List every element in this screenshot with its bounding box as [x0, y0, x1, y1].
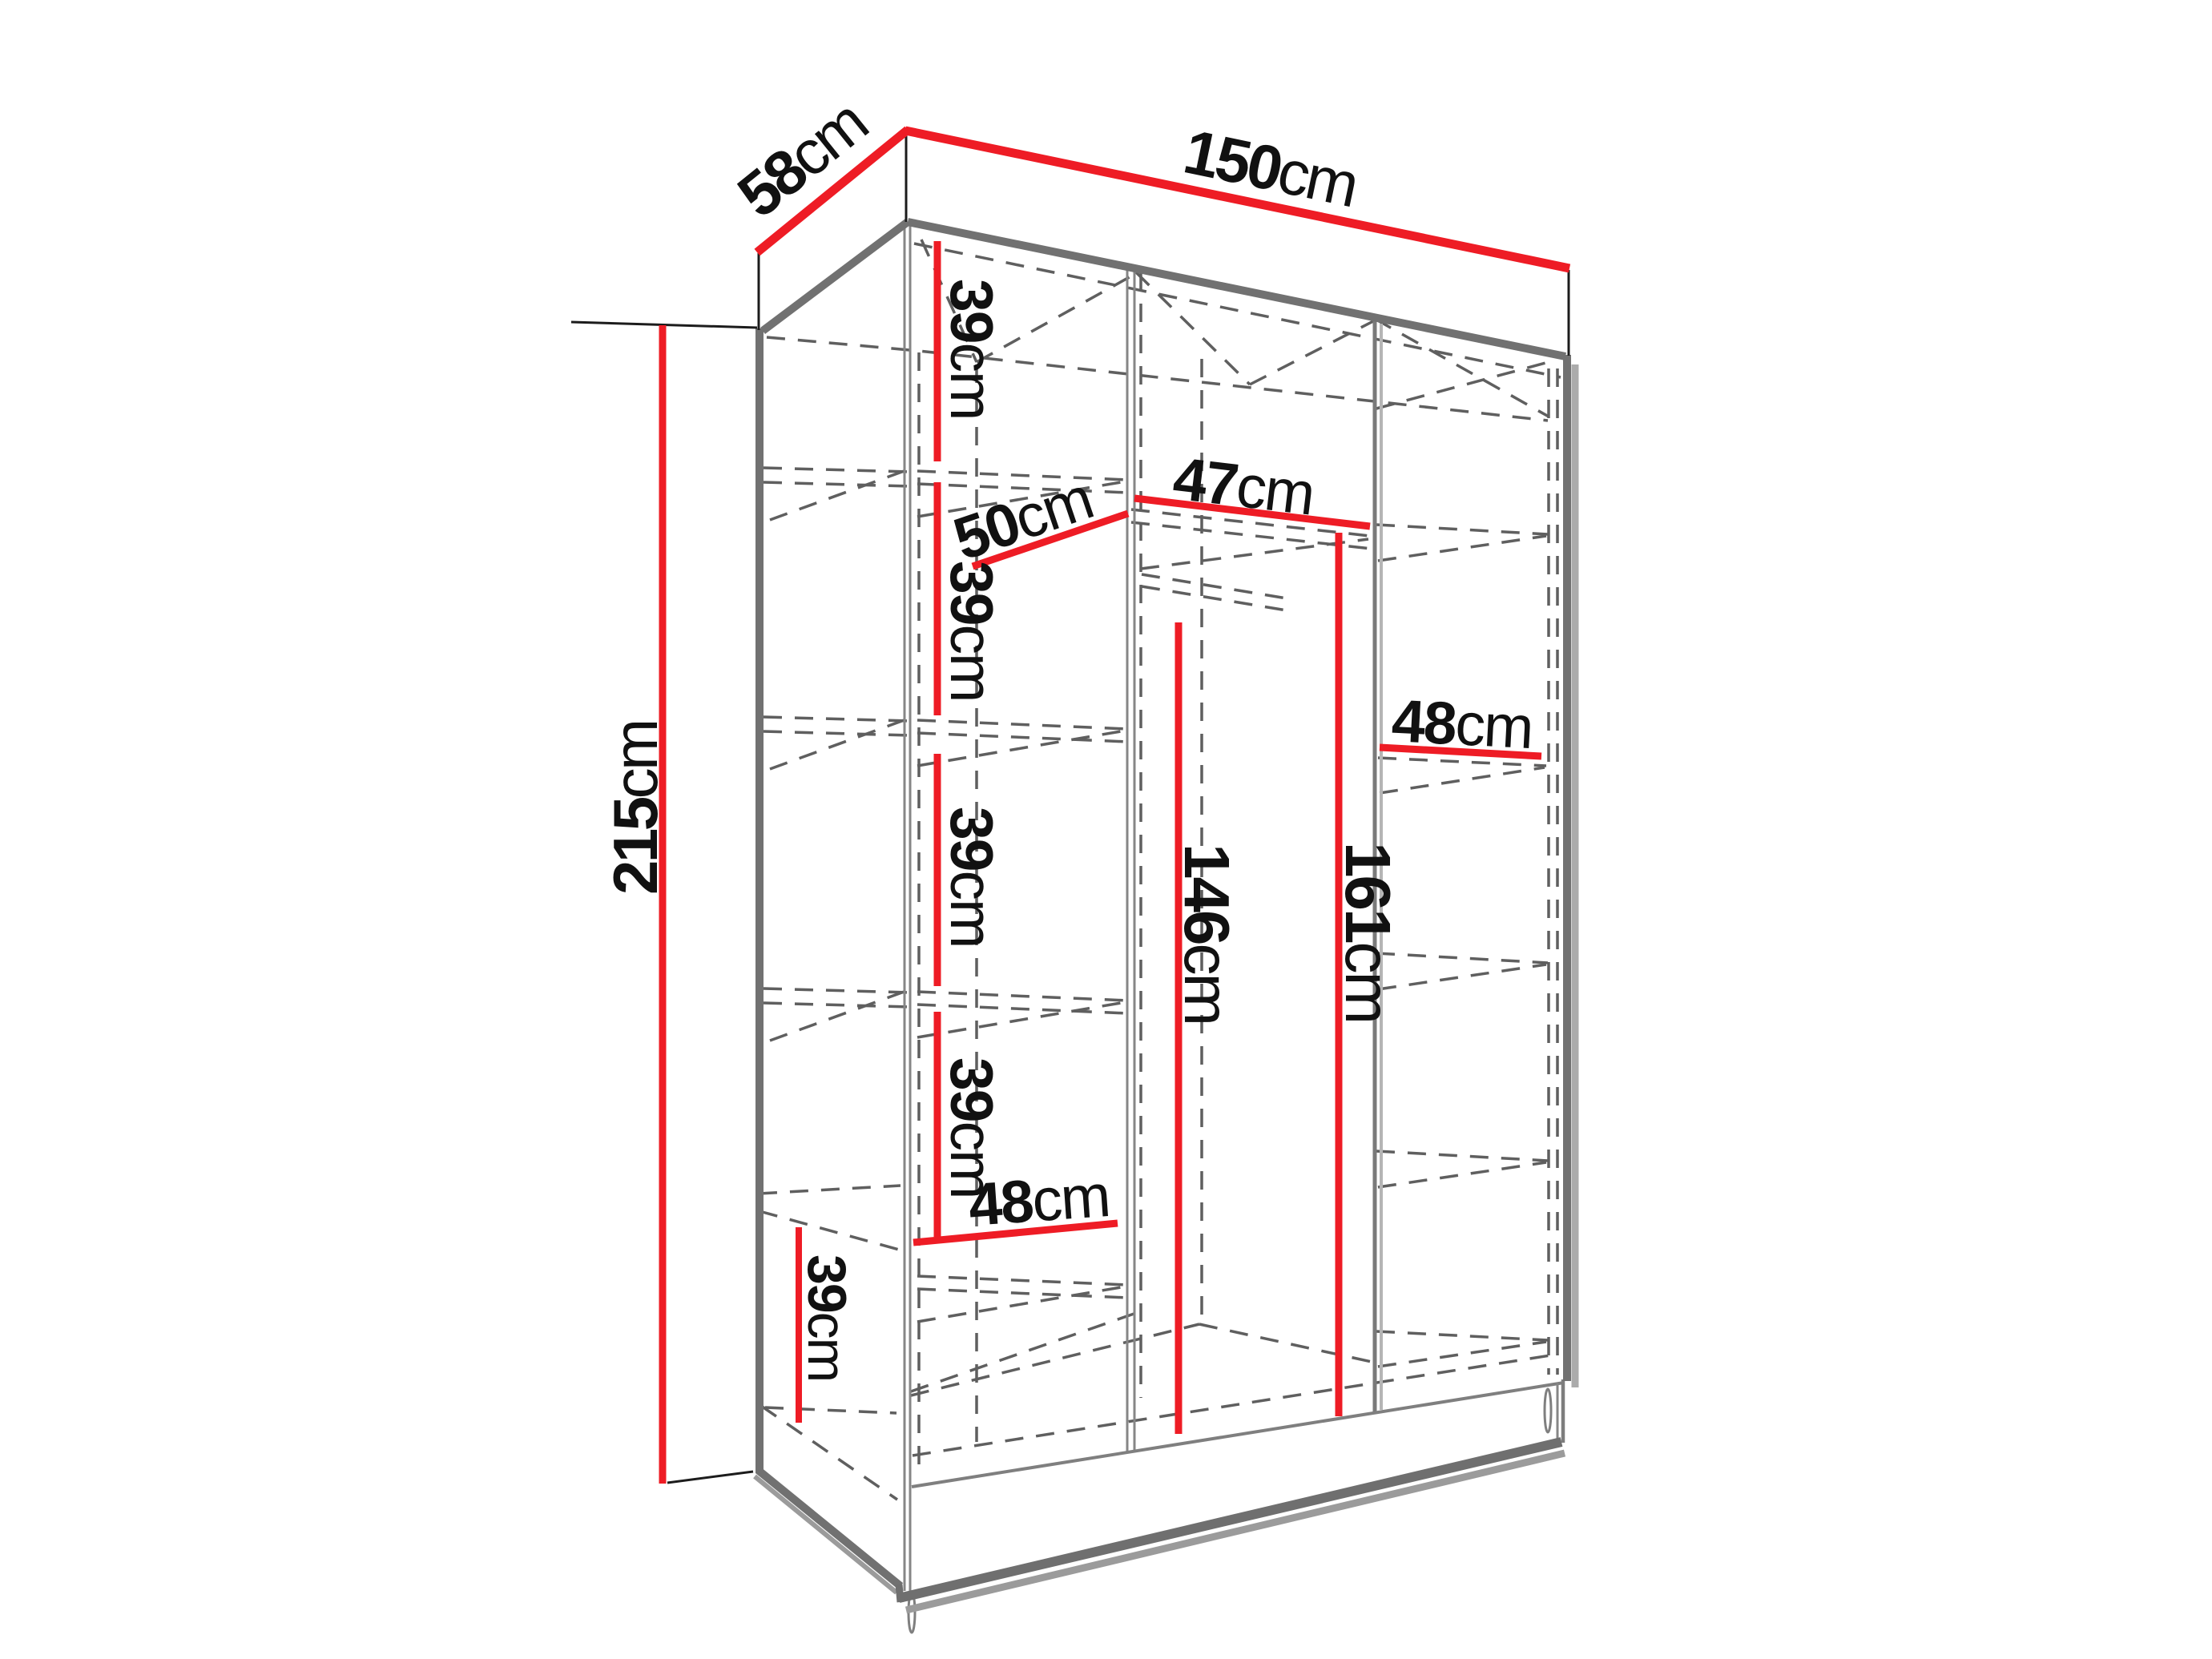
svg-text:215cm: 215cm: [600, 721, 671, 895]
svg-text:39cm: 39cm: [796, 1254, 857, 1381]
svg-text:161cm: 161cm: [1332, 842, 1404, 1022]
svg-text:146cm: 146cm: [1171, 844, 1243, 1024]
svg-text:39cm: 39cm: [938, 279, 1005, 419]
svg-text:48cm: 48cm: [966, 1162, 1111, 1238]
svg-text:39cm: 39cm: [938, 807, 1005, 947]
svg-text:48cm: 48cm: [1390, 687, 1534, 761]
svg-text:39cm: 39cm: [938, 561, 1005, 701]
